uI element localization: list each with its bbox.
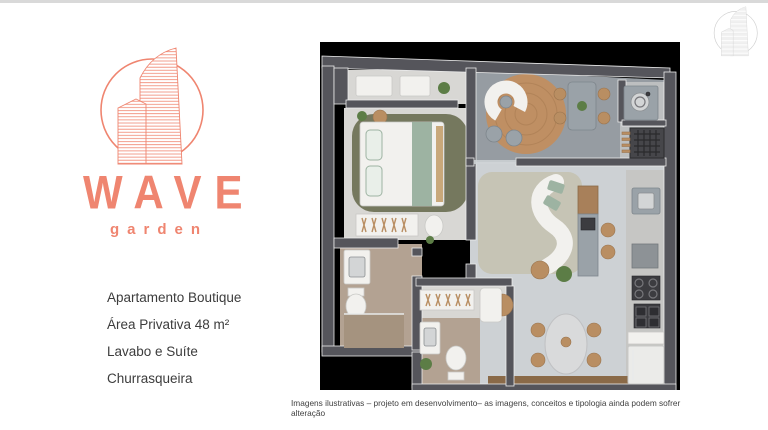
buildings-circle-watermark-icon bbox=[712, 5, 762, 57]
buildings-circle-icon bbox=[96, 44, 214, 166]
brand-logo bbox=[96, 44, 214, 166]
bed-icon bbox=[357, 110, 444, 206]
detail-line-area: Área Privativa 48 m² bbox=[107, 311, 241, 338]
detail-line-grill: Churrasqueira bbox=[107, 365, 241, 392]
presentation-slide: WAVE garden Apartamento Boutique Área Pr… bbox=[0, 0, 768, 430]
detail-line-apartment: Apartamento Boutique bbox=[107, 284, 241, 311]
top-border bbox=[0, 0, 768, 3]
disclaimer-text: Imagens ilustrativas – projeto em desenv… bbox=[291, 398, 711, 418]
floorplan-image bbox=[320, 42, 680, 390]
terrace-sink bbox=[624, 86, 658, 120]
brand-name: WAVE bbox=[70, 166, 240, 220]
apartment-details: Apartamento Boutique Área Privativa 48 m… bbox=[107, 284, 241, 392]
detail-line-rooms: Lavabo e Suíte bbox=[107, 338, 241, 365]
brand-subtitle: garden bbox=[70, 221, 240, 238]
brand-watermark-logo bbox=[712, 5, 762, 57]
